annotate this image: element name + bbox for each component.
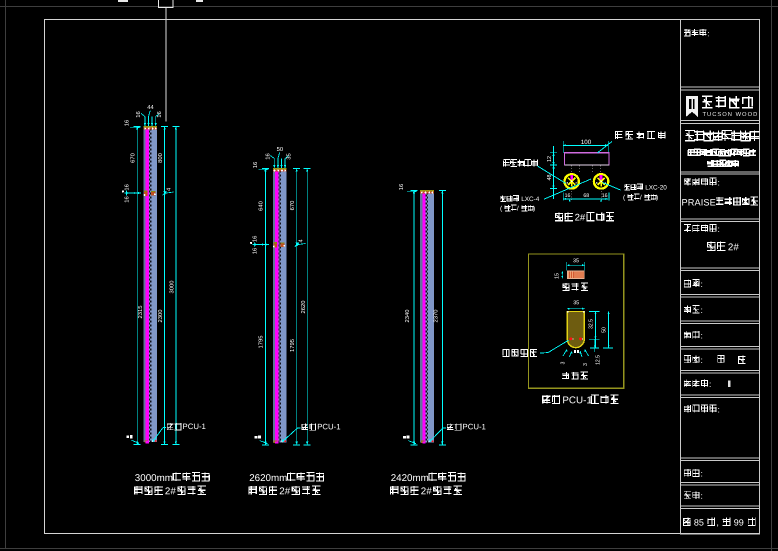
- svg-text:): ): [533, 206, 535, 213]
- svg-text:,: ,: [716, 518, 719, 528]
- svg-text:/: /: [517, 206, 519, 213]
- svg-text::: :: [707, 29, 709, 38]
- svg-text:670: 670: [290, 201, 296, 211]
- svg-text:LXC-4: LXC-4: [521, 196, 540, 203]
- svg-text:16: 16: [136, 111, 142, 117]
- svg-text::: :: [700, 279, 702, 289]
- svg-text::: :: [709, 379, 711, 389]
- svg-text:16: 16: [253, 236, 259, 242]
- svg-text:48: 48: [547, 175, 553, 181]
- svg-text:670: 670: [130, 153, 136, 163]
- svg-text:44: 44: [147, 105, 154, 111]
- svg-text:16: 16: [157, 111, 163, 117]
- svg-text:2#: 2#: [279, 486, 290, 497]
- svg-text:3000: 3000: [170, 281, 176, 294]
- svg-text:12.5: 12.5: [596, 355, 602, 365]
- svg-text:2#: 2#: [575, 213, 586, 224]
- svg-text:35: 35: [573, 258, 579, 264]
- svg-text:PCU-1: PCU-1: [317, 422, 340, 431]
- svg-text:16: 16: [125, 120, 131, 126]
- svg-text:2315: 2315: [138, 306, 144, 319]
- svg-text:LXC-20: LXC-20: [645, 185, 667, 192]
- svg-text::: :: [700, 331, 702, 341]
- svg-text:15: 15: [555, 273, 561, 279]
- svg-text:PCU-1: PCU-1: [462, 422, 485, 431]
- svg-text:640: 640: [259, 201, 265, 211]
- svg-text:2620mm: 2620mm: [249, 473, 287, 484]
- svg-text:800: 800: [158, 153, 164, 163]
- svg-text::: :: [700, 305, 702, 315]
- svg-text:2#: 2#: [421, 486, 432, 497]
- svg-text::: :: [717, 178, 719, 188]
- svg-text:16: 16: [253, 162, 259, 168]
- svg-text:16: 16: [602, 193, 608, 199]
- svg-text::: :: [717, 405, 719, 415]
- svg-text:PCU-1: PCU-1: [562, 395, 591, 406]
- svg-text:12: 12: [547, 156, 553, 162]
- svg-text:/: /: [640, 195, 642, 202]
- svg-text:99: 99: [734, 518, 744, 528]
- svg-text:50: 50: [277, 147, 283, 153]
- svg-text:2300: 2300: [158, 310, 164, 323]
- svg-text:16: 16: [253, 248, 259, 254]
- svg-text:3: 3: [583, 363, 589, 366]
- svg-text:35: 35: [573, 300, 579, 306]
- svg-text:3000mm: 3000mm: [135, 473, 173, 484]
- svg-text:68: 68: [583, 193, 589, 199]
- svg-text::: :: [700, 491, 702, 501]
- svg-text:50: 50: [602, 327, 608, 333]
- svg-text:16: 16: [124, 184, 130, 190]
- svg-text:16: 16: [124, 196, 130, 202]
- svg-text:1795: 1795: [259, 336, 265, 349]
- svg-text:): ): [656, 195, 658, 202]
- svg-text:2340: 2340: [405, 310, 411, 323]
- svg-text:PRAISE: PRAISE: [681, 198, 715, 208]
- svg-text:PCU-1: PCU-1: [182, 422, 205, 431]
- svg-text:2#: 2#: [728, 242, 739, 253]
- svg-text:TUCSON WOOD: TUCSON WOOD: [702, 112, 758, 118]
- svg-text:2#: 2#: [165, 486, 176, 497]
- svg-text:2370: 2370: [434, 310, 440, 323]
- svg-text:16: 16: [399, 184, 405, 190]
- svg-text:35: 35: [286, 153, 292, 159]
- svg-text:32.5: 32.5: [589, 319, 595, 329]
- svg-text:3: 3: [561, 361, 567, 364]
- svg-text:1795: 1795: [290, 339, 296, 352]
- svg-text:2420mm: 2420mm: [391, 473, 429, 484]
- svg-text::: :: [717, 224, 719, 234]
- svg-text:2620: 2620: [301, 301, 307, 314]
- svg-text::: :: [700, 469, 702, 479]
- svg-text:16: 16: [565, 193, 571, 199]
- svg-text:16: 16: [265, 153, 271, 159]
- svg-text::: :: [700, 355, 702, 365]
- svg-text:85: 85: [694, 518, 704, 528]
